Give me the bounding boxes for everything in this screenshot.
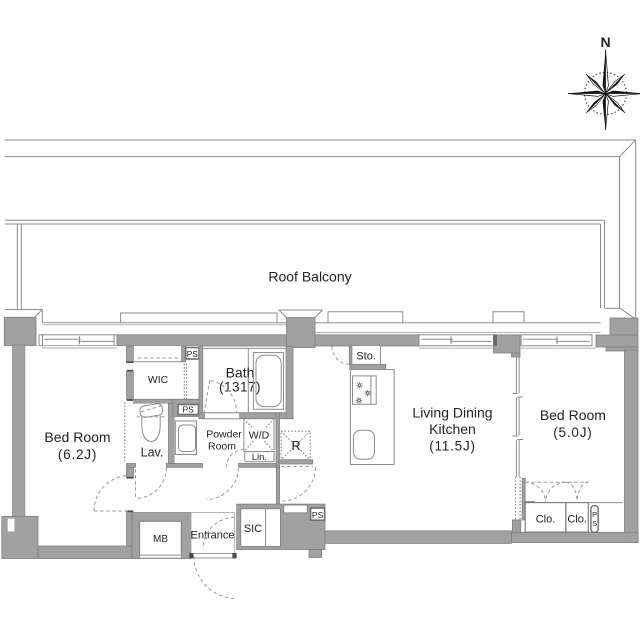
svg-text:Powder: Powder [206,429,242,441]
svg-text:Lin.: Lin. [252,452,267,463]
svg-text:Entrance: Entrance [190,530,234,542]
svg-text:Living Dining: Living Dining [412,405,492,421]
svg-text:P: P [592,510,597,519]
svg-text:Kitchen: Kitchen [429,421,476,437]
svg-text:(5.0J): (5.0J) [553,425,592,440]
svg-text:PS: PS [187,349,199,359]
svg-text:N: N [600,34,610,50]
svg-text:(6.2J): (6.2J) [58,447,97,462]
svg-text:Bath: Bath [226,365,255,381]
svg-text:(1317): (1317) [219,380,261,395]
svg-text:Bed Room: Bed Room [44,429,110,445]
svg-text:Lav.: Lav. [141,446,164,460]
svg-text:Sto.: Sto. [356,351,376,363]
svg-text:Clo.: Clo. [536,514,556,526]
svg-text:(11.5J): (11.5J) [429,439,476,454]
svg-text:Bed Room: Bed Room [540,407,606,423]
svg-text:Room: Room [208,441,236,453]
svg-text:SIC: SIC [244,523,262,535]
svg-text:S: S [592,519,597,528]
svg-text:MB: MB [153,534,168,545]
svg-text:W/D: W/D [249,430,270,442]
svg-text:WIC: WIC [148,374,169,386]
svg-text:PS: PS [183,405,195,415]
svg-text:Clo.: Clo. [567,514,587,526]
svg-text:Roof Balcony: Roof Balcony [268,269,351,285]
